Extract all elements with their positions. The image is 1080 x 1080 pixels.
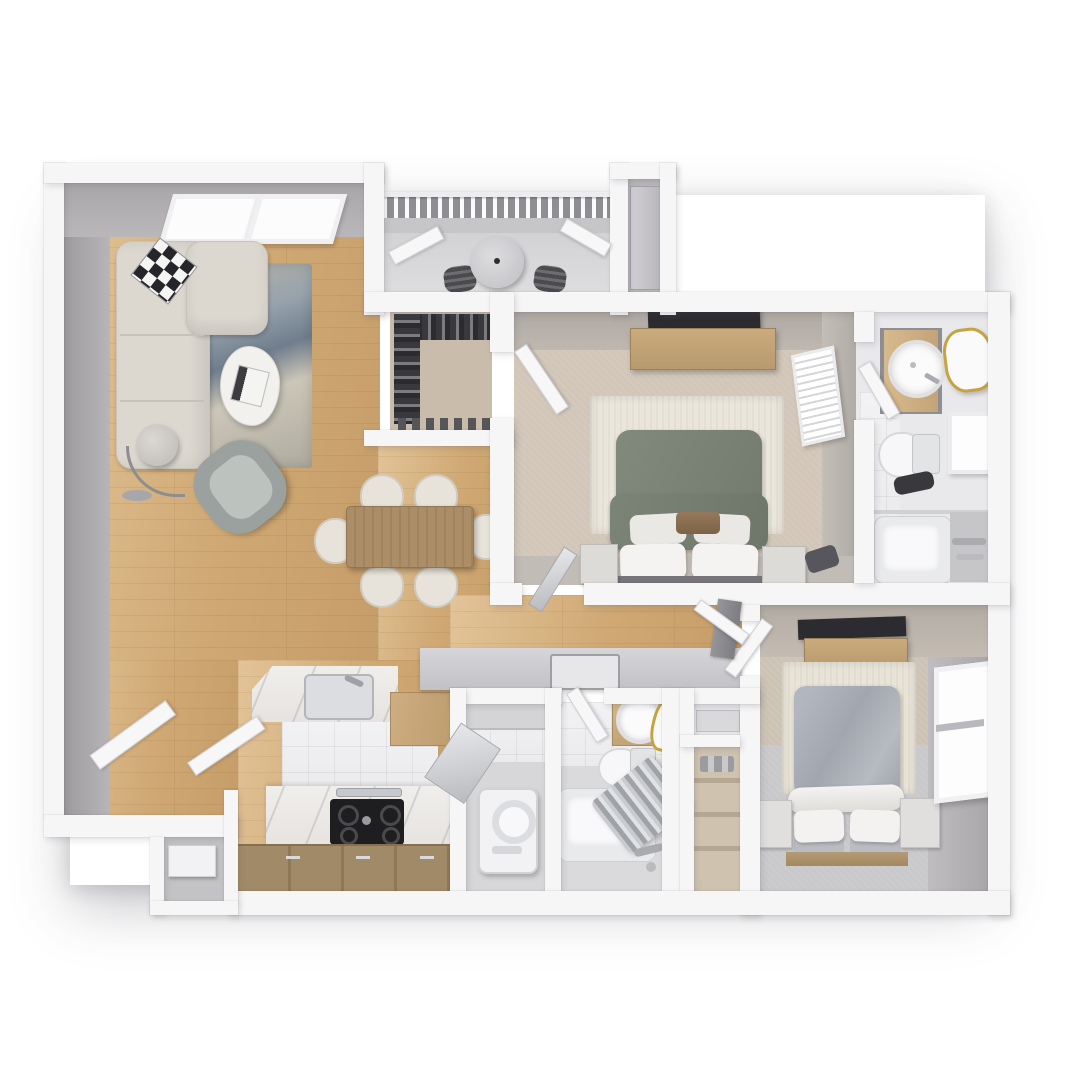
bed2-pillow-2 xyxy=(849,809,900,843)
oven-handle xyxy=(336,788,402,797)
bed2-pillow-1 xyxy=(793,809,844,843)
bath1-fixture-bar-2 xyxy=(956,554,984,560)
arc-lamp-shade xyxy=(136,424,178,466)
closet-clothes-rod-left xyxy=(394,314,420,424)
washer-door xyxy=(492,800,536,844)
living-left-wall-face xyxy=(62,183,110,815)
wall-outer-bottom xyxy=(228,891,1010,915)
wall-bedroom2-left-lower xyxy=(740,676,760,915)
bath1-toilet-tank xyxy=(912,434,940,474)
closet-small-shelf xyxy=(696,710,740,732)
balcony-table-umbrella-hole xyxy=(494,258,500,264)
wall-bath1-left-lower xyxy=(854,420,874,583)
wall-entry-bottom xyxy=(44,815,238,837)
bed1-nightstand-right xyxy=(762,546,806,584)
dining-chair-bottom-1 xyxy=(360,566,404,608)
bath1-sink-drain xyxy=(910,362,916,368)
kitchen-base-cabinets xyxy=(238,844,452,895)
wall-bedroom1-left-upper xyxy=(490,292,514,352)
bed2-duvet xyxy=(794,686,900,796)
wall-alcove-right xyxy=(224,790,238,903)
burner-2 xyxy=(380,805,401,826)
bath2-drain xyxy=(646,862,656,872)
linen-shelf-2 xyxy=(694,812,740,817)
wall-alcove-bottom xyxy=(150,901,238,915)
wall-bedroom1-left-lower xyxy=(490,418,514,585)
skylight-window-2 xyxy=(245,194,347,244)
cabinet-handle-3 xyxy=(420,856,434,859)
floor-plan xyxy=(0,0,1080,1080)
counter-sink-inset xyxy=(550,654,620,690)
wall-bath2-right xyxy=(662,688,680,893)
burner-3 xyxy=(340,827,358,845)
bed2-nightstand-left xyxy=(758,800,792,848)
wall-laundry-right xyxy=(545,688,561,893)
wall-mid-bottom xyxy=(584,583,1010,605)
wall-mid-top xyxy=(364,292,1010,312)
balcony-railing-toprail xyxy=(383,192,613,197)
patio-chair-right xyxy=(532,264,567,294)
linen-shelf-1 xyxy=(694,778,740,783)
sofa-cushion-seam-2 xyxy=(120,400,204,402)
wall-mid-bottom-left xyxy=(490,583,522,605)
washer-control xyxy=(492,846,522,854)
wall-bath1-left-upper xyxy=(854,312,874,342)
linen-shelf-3 xyxy=(694,846,740,851)
cooktop-knob xyxy=(362,816,371,825)
cabinet-handle-1 xyxy=(286,856,300,859)
sofa-chaise xyxy=(186,241,268,335)
burner-4 xyxy=(382,827,400,845)
bath1-sink xyxy=(888,340,946,398)
arc-lamp-base xyxy=(122,490,152,501)
entry-shoe-cabinet xyxy=(168,845,216,877)
wall-closet-divider xyxy=(680,735,740,747)
bed1-accent-pillow xyxy=(676,512,720,534)
bedroom1-dresser xyxy=(630,328,776,370)
burner-1 xyxy=(338,805,359,826)
bed2-nightstand-right xyxy=(900,798,940,848)
dining-table xyxy=(346,506,474,568)
wall-bedroom2-left-upper xyxy=(740,605,760,621)
bath1-tub-surround xyxy=(950,512,990,582)
bath1-fixture-bar-1 xyxy=(952,538,986,545)
bed1-nightstand-left xyxy=(580,544,618,584)
sofa-cushion-seam-1 xyxy=(120,334,204,336)
refrigerator xyxy=(390,692,456,746)
island-sink xyxy=(304,674,374,720)
bedroom2-tv xyxy=(798,616,907,640)
closet-shoe-row xyxy=(398,418,490,430)
wall-outer-top xyxy=(44,163,384,183)
bedroom2-window xyxy=(934,660,996,804)
bath1-window xyxy=(948,412,992,474)
dining-chair-bottom-2 xyxy=(414,566,458,608)
bath1-tub-basin xyxy=(882,524,940,572)
balcony-railing xyxy=(383,196,613,218)
bed1-duvet-top xyxy=(616,430,762,504)
bed2-headboard xyxy=(786,852,908,866)
cabinet-handle-2 xyxy=(356,856,370,859)
linen-items xyxy=(700,756,734,772)
wall-outer-left xyxy=(44,163,64,817)
wall-closet-column-left xyxy=(680,688,694,893)
